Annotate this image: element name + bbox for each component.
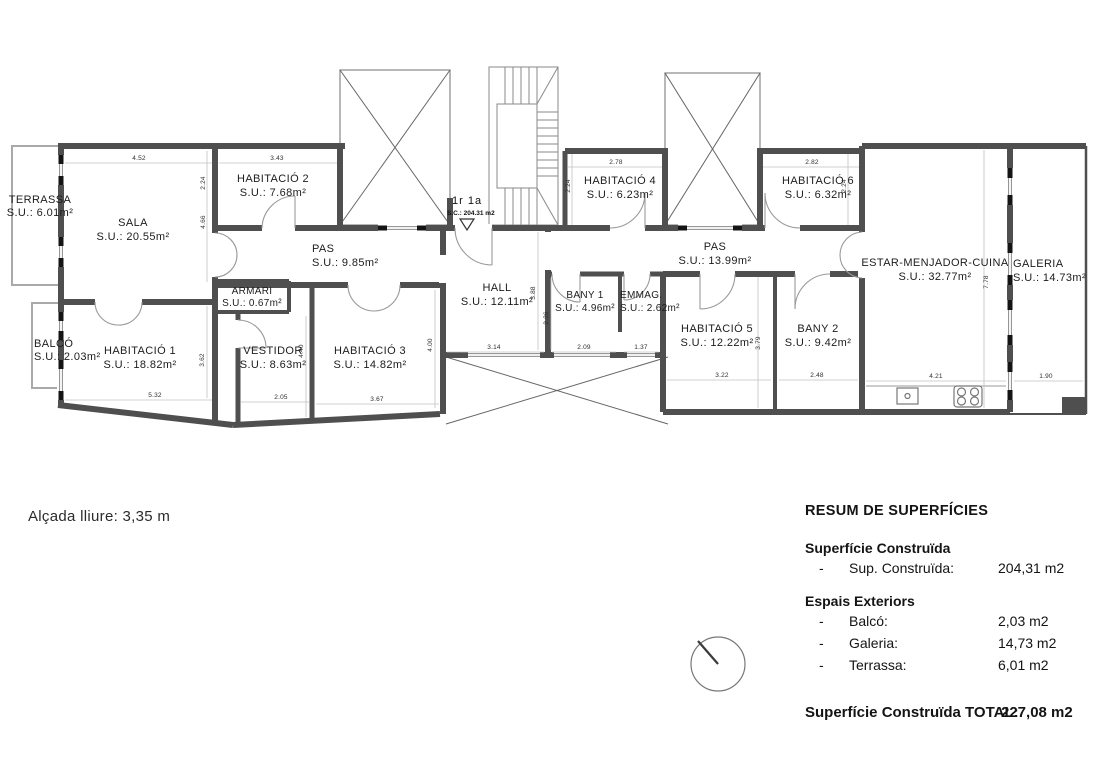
dim-top-hab2: 3.43 [270, 155, 284, 162]
room-label-bany2: BANY 2 [797, 323, 838, 335]
terrassa-value: 6,01 m2 [998, 657, 1049, 673]
dim-bottom-vestidor: 2.05 [274, 394, 288, 401]
dim-bottom-hall: 3.14 [487, 344, 501, 351]
entrance-unit-label: 1r 1a [452, 195, 482, 207]
summary-built-header: Superfície Construïda [805, 540, 1095, 556]
summary-row-built: - Sup. Construïda: 204,31 m2 [805, 560, 1095, 578]
room-area-habitacio3: S.U.: 14.82m² [333, 359, 406, 371]
room-area-habitacio5: S.U.: 12.22m² [680, 337, 753, 349]
room-area-estar: S.U.: 32.77m² [898, 271, 971, 283]
built-label: Sup. Construïda: [849, 560, 954, 576]
room-area-vestidor: S.U.: 8.63m² [240, 359, 307, 371]
dim-top-sala: 4.52 [132, 155, 146, 162]
dim-v-hab3: 4.00 [427, 338, 434, 352]
ceiling-height-note: Alçada lliure: 3,35 m [28, 508, 170, 525]
dim-v-bany1: 2.26 [543, 311, 550, 325]
dim-v-hab4: 2.24 [565, 179, 572, 193]
dim-top-hab6: 2.82 [805, 159, 819, 166]
room-label-habitacio4: HABITACIÓ 4 [584, 174, 656, 187]
balco-value: 2,03 m2 [998, 613, 1049, 629]
room-area-galeria: S.U.: 14.73m² [1013, 272, 1086, 284]
light-well-2 [665, 73, 760, 225]
kitchen-fixtures [866, 386, 1006, 407]
dim-bottom-galeria: 1.90 [1039, 373, 1053, 380]
room-area-pas2: S.U.: 13.99m² [678, 255, 751, 267]
room-label-habitacio5: HABITACIÓ 5 [681, 322, 753, 335]
entrance-built-area-label: S.C.: 204.31 m2 [447, 210, 495, 217]
room-label-bany1: BANY 1 [566, 290, 603, 301]
sink [897, 388, 918, 404]
bullet-dash: - [819, 560, 824, 576]
room-area-balco: S.U.: 2.03m² [34, 351, 101, 363]
room-label-terrassa: TERRASSA [9, 194, 72, 206]
dim-bottom-hab3: 3.67 [370, 396, 384, 403]
room-label-sala: SALA [118, 217, 148, 229]
room-area-hall: S.U.: 12.11m² [461, 296, 533, 308]
room-area-bany2: S.U.: 9.42m² [785, 337, 852, 349]
galeria-value: 14,73 m2 [998, 635, 1056, 651]
compass [691, 637, 745, 691]
dim-bottom-bany1: 2.09 [577, 344, 591, 351]
balco-label: Balcó: [849, 613, 888, 629]
bullet-dash: - [819, 613, 824, 629]
room-area-habitacio1: S.U.: 18.82m² [103, 359, 176, 371]
room-area-armari: S.U.: 0.67m² [222, 298, 282, 309]
galeria-label: Galeria: [849, 635, 898, 651]
dim-v-hab1: 3.62 [199, 353, 206, 367]
room-area-emmag: S.U.: 2.62m² [620, 303, 680, 314]
summary-exterior-header: Espais Exteriors [805, 593, 1095, 609]
dim-top-hab4: 2.78 [609, 159, 623, 166]
room-label-estar: ESTAR-MENJADOR-CUINA [861, 257, 1008, 269]
room-label-pas2: PAS [704, 241, 726, 253]
lower-light-well [446, 357, 668, 424]
room-label-habitacio1: HABITACIÓ 1 [104, 344, 176, 357]
light-well-1 [340, 70, 450, 225]
dim-v-cuina: 7.78 [983, 275, 990, 289]
summary-row-balco: - Balcó: 2,03 m2 [805, 613, 1095, 631]
dim-v-sala: 4.66 [200, 215, 207, 229]
dim-bottom-hab1: 5.32 [148, 392, 162, 399]
floor-plan-page: 4.52 3.43 2.78 2.82 5.32 2.05 3.67 3.14 … [0, 0, 1100, 776]
terrassa-label: Terrassa: [849, 657, 907, 673]
room-area-habitacio2: S.U.: 7.68m² [240, 187, 307, 199]
summary-panel: RESUM DE SUPERFÍCIES Superfície Construï… [805, 503, 1095, 724]
room-area-habitacio4: S.U.: 6.23m² [587, 189, 654, 201]
dim-bottom-bany2: 2.48 [810, 372, 824, 379]
staircase [489, 67, 558, 225]
dim-v-hab5: 3.79 [755, 336, 762, 350]
room-label-habitacio2: HABITACIÓ 2 [237, 172, 309, 185]
room-label-balco: BALCÓ [34, 337, 73, 350]
room-area-terrassa: S.U.: 6.01m² [7, 207, 74, 219]
room-area-habitacio6: S.U.: 6.32m² [785, 189, 852, 201]
total-label: Superfície Construïda TOTAL: [805, 704, 1019, 721]
bullet-dash: - [819, 657, 824, 673]
summary-total-row: Superfície Construïda TOTAL: 227,08 m2 [805, 704, 1095, 724]
room-label-vestidor: VESTIDOR [243, 345, 302, 357]
total-value: 227,08 m2 [1001, 704, 1073, 721]
room-label-hall: HALL [482, 282, 511, 294]
dim-v-hab2: 2.24 [200, 176, 207, 190]
dim-bottom-emmag: 1.37 [634, 344, 648, 351]
room-label-habitacio3: HABITACIÓ 3 [334, 344, 406, 357]
dim-bottom-cuina: 4.21 [929, 373, 943, 380]
summary-title: RESUM DE SUPERFÍCIES [805, 503, 1095, 519]
room-label-armari: ARMARI [232, 286, 273, 297]
compass-needle [698, 641, 718, 664]
dim-bottom-hab5: 3.22 [715, 372, 729, 379]
summary-row-terrassa: - Terrassa: 6,01 m2 [805, 657, 1095, 675]
bullet-dash: - [819, 635, 824, 651]
room-label-habitacio6: HABITACIÓ 6 [782, 174, 854, 187]
room-area-pas1: S.U.: 9.85m² [312, 257, 379, 269]
summary-row-galeria: - Galeria: 14,73 m2 [805, 635, 1095, 653]
room-label-emmag: EMMAG. [620, 290, 662, 301]
built-value: 204,31 m2 [998, 560, 1064, 576]
room-area-sala: S.U.: 20.55m² [96, 231, 169, 243]
room-area-bany1: S.U.: 4.96m² [555, 303, 615, 314]
room-label-galeria: GALERIA [1013, 258, 1064, 270]
room-label-pas1: PAS [312, 243, 334, 255]
